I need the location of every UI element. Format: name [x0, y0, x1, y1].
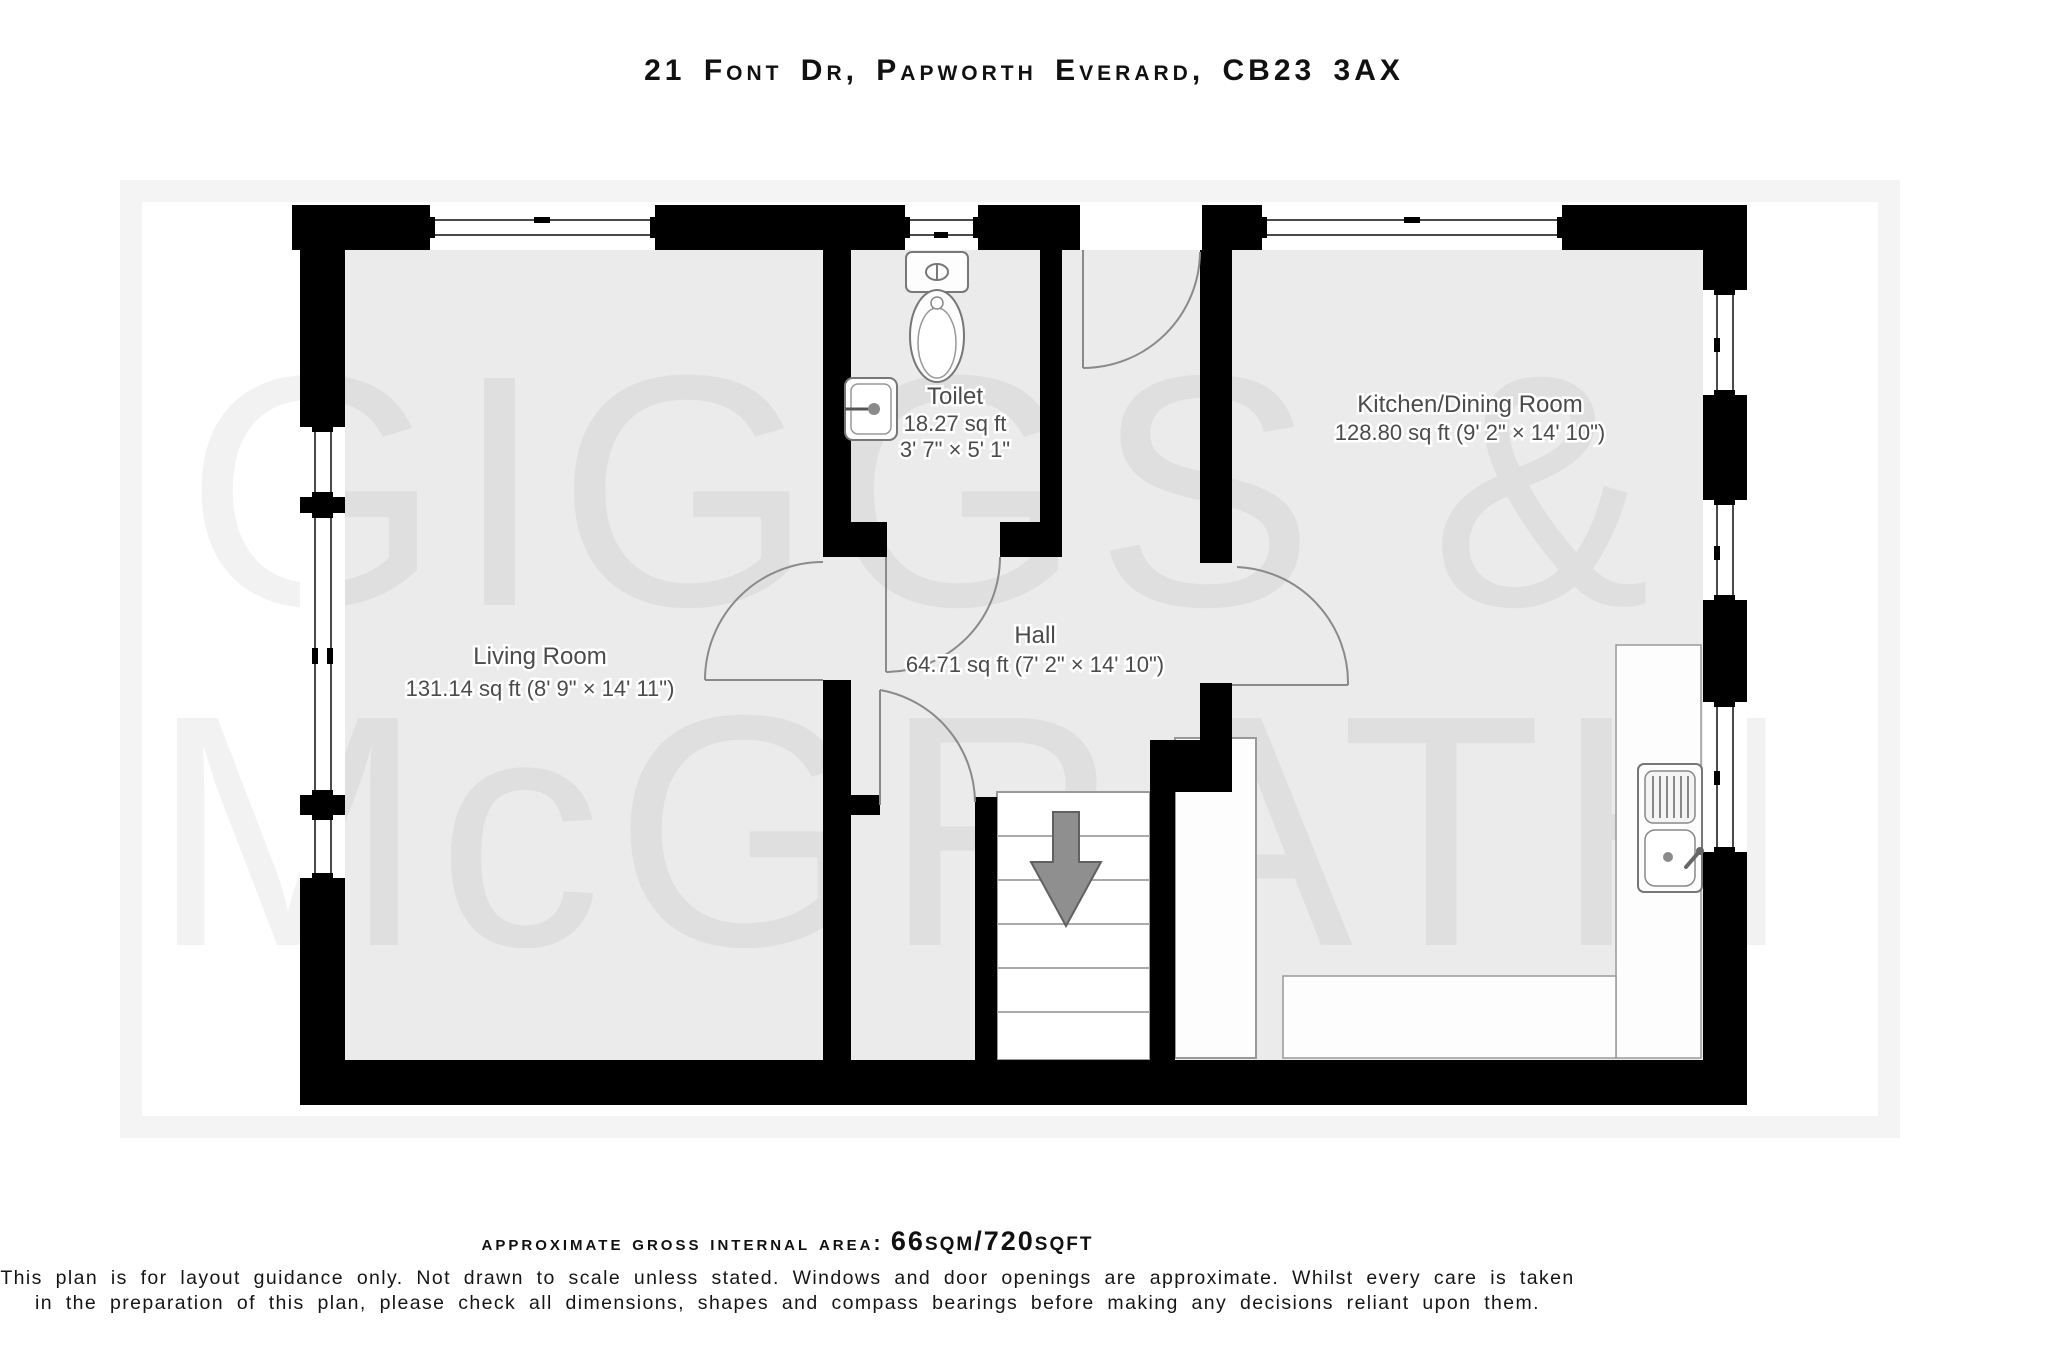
- window-living-top: [430, 205, 655, 250]
- toilet-sink-icon: [845, 378, 897, 440]
- window-toilet-top: [905, 205, 978, 250]
- hall-name: Hall: [1014, 622, 1055, 649]
- disclaimer-line2: in the preparation of this plan, please …: [0, 1291, 1575, 1316]
- window-living-left-upper: [300, 427, 345, 497]
- window-kitchen-right-upper: [1703, 290, 1747, 395]
- kitchen-sink-icon: [1638, 764, 1704, 892]
- area-value: 66sqm/720sqft: [891, 1226, 1094, 1256]
- window-kitchen-right-middle: [1703, 500, 1747, 600]
- window-living-left-middle: [300, 513, 345, 795]
- toilet-name: Toilet: [927, 383, 983, 410]
- living-room-dims: 131.14 sq ft (8' 9" × 14' 11"): [406, 676, 675, 701]
- stairs: [997, 792, 1150, 1060]
- floor-plan: GIGGS & McGRATH: [0, 0, 2048, 1365]
- kitchen-counter-bottom: [1283, 976, 1616, 1058]
- toilet-area: 18.27 sq ft: [904, 411, 1007, 436]
- window-kitchen-right-lower: [1703, 702, 1747, 852]
- toilet-wc-icon: [906, 252, 968, 382]
- kitchen-dims: 128.80 sq ft (9' 2" × 14' 10"): [1335, 420, 1605, 445]
- disclaimer: This plan is for layout guidance only. N…: [0, 1266, 1575, 1316]
- window-kitchen-top: [1262, 205, 1562, 250]
- gross-internal-area: approximate gross internal area: 66sqm/7…: [0, 1226, 1575, 1257]
- floorplan-page: 21 Font Dr, Papworth Everard, CB23 3AX G…: [0, 0, 2048, 1365]
- living-room-name: Living Room: [473, 643, 606, 670]
- toilet-dims: 3' 7" × 5' 1": [900, 437, 1010, 462]
- disclaimer-line1: This plan is for layout guidance only. N…: [0, 1266, 1575, 1291]
- kitchen-name: Kitchen/Dining Room: [1357, 391, 1582, 418]
- window-living-left-lower: [300, 815, 345, 878]
- area-label: approximate gross internal area:: [482, 1232, 884, 1255]
- hall-dims: 64.71 sq ft (7' 2" × 14' 10"): [906, 652, 1164, 677]
